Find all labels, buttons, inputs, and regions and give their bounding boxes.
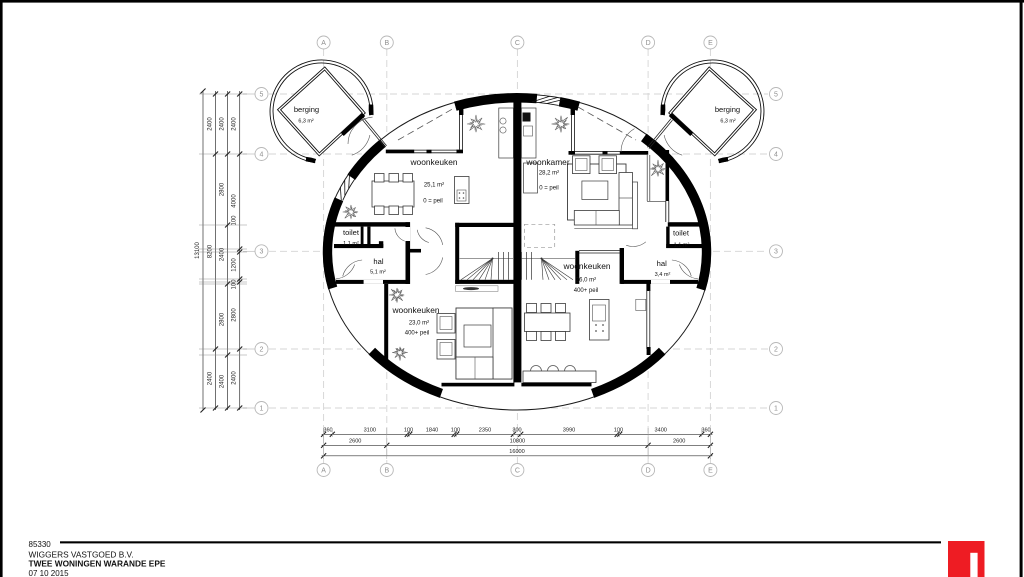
svg-text:3: 3 [260, 249, 264, 256]
svg-text:0 = peil: 0 = peil [423, 199, 443, 205]
svg-text:2400: 2400 [207, 117, 213, 131]
svg-text:D: D [646, 467, 651, 474]
svg-text:woonkeuken: woonkeuken [409, 157, 457, 167]
svg-text:2: 2 [774, 346, 778, 353]
svg-text:woonkeuken: woonkeuken [562, 261, 610, 271]
svg-text:07 10 2015: 07 10 2015 [29, 569, 70, 577]
svg-text:toilet: toilet [673, 229, 690, 238]
svg-text:6,3 m²: 6,3 m² [720, 119, 735, 125]
svg-text:2800: 2800 [219, 182, 225, 196]
svg-text:4: 4 [774, 151, 778, 158]
svg-text:3990: 3990 [563, 427, 575, 433]
svg-text:2600: 2600 [673, 438, 685, 444]
svg-text:2400: 2400 [219, 374, 225, 388]
svg-text:E: E [708, 40, 713, 47]
svg-text:2600: 2600 [349, 438, 361, 444]
svg-text:13100: 13100 [195, 241, 201, 258]
svg-text:2400: 2400 [207, 371, 213, 385]
svg-text:berging: berging [715, 105, 740, 114]
svg-text:hal: hal [657, 259, 667, 268]
svg-text:2400: 2400 [232, 371, 238, 385]
svg-text:2800: 2800 [232, 308, 238, 322]
svg-text:2: 2 [260, 346, 264, 353]
svg-text:5,1 m²: 5,1 m² [370, 270, 386, 276]
svg-text:100: 100 [404, 427, 413, 433]
svg-text:hal: hal [373, 257, 383, 266]
svg-text:28,2 m²: 28,2 m² [539, 171, 559, 177]
svg-text:10800: 10800 [510, 438, 526, 444]
svg-text:2400: 2400 [219, 117, 225, 131]
svg-text:0 = peil: 0 = peil [539, 186, 559, 192]
svg-text:5: 5 [774, 91, 778, 98]
svg-text:360: 360 [701, 427, 710, 433]
svg-text:4: 4 [260, 151, 264, 158]
svg-text:2800: 2800 [219, 312, 225, 326]
svg-text:6,3 m²: 6,3 m² [298, 119, 313, 125]
svg-text:5: 5 [260, 91, 264, 98]
svg-text:16000: 16000 [509, 449, 525, 455]
svg-text:2400: 2400 [219, 247, 225, 261]
svg-text:1: 1 [774, 405, 778, 412]
svg-text:100: 100 [614, 427, 623, 433]
svg-text:woonkeuken: woonkeuken [391, 305, 439, 315]
svg-text:A: A [321, 467, 326, 474]
svg-text:2350: 2350 [479, 427, 491, 433]
svg-text:400+ peil: 400+ peil [405, 331, 430, 337]
svg-text:3100: 3100 [364, 427, 376, 433]
svg-text:1,1 m²: 1,1 m² [674, 243, 690, 249]
svg-text:woonkamer: woonkamer [525, 157, 570, 167]
svg-text:TWEE WONINGEN WARANDE EPE: TWEE WONINGEN WARANDE EPE [29, 559, 166, 569]
svg-text:4000: 4000 [232, 194, 238, 208]
svg-text:1200: 1200 [232, 258, 238, 272]
svg-text:2400: 2400 [232, 117, 238, 131]
svg-text:100: 100 [232, 215, 238, 226]
svg-text:360: 360 [323, 427, 332, 433]
svg-text:3: 3 [774, 249, 778, 256]
svg-text:100: 100 [232, 279, 238, 290]
svg-text:1: 1 [260, 405, 264, 412]
svg-text:85330: 85330 [29, 540, 52, 549]
svg-text:300: 300 [512, 427, 521, 433]
svg-text:400+ peil: 400+ peil [574, 288, 599, 294]
svg-text:26,0 m²: 26,0 m² [576, 278, 596, 284]
svg-text:25,1 m²: 25,1 m² [424, 183, 444, 189]
svg-text:100: 100 [451, 427, 460, 433]
svg-text:E: E [708, 467, 713, 474]
svg-text:8200: 8200 [207, 244, 213, 258]
svg-text:berging: berging [294, 105, 319, 114]
svg-text:C: C [515, 467, 520, 474]
svg-text:B: B [384, 467, 389, 474]
svg-text:toilet: toilet [343, 228, 360, 237]
svg-text:1,1 m²: 1,1 m² [343, 241, 359, 247]
svg-text:23,0 m²: 23,0 m² [409, 321, 429, 327]
svg-text:1840: 1840 [426, 427, 438, 433]
svg-text:B: B [384, 40, 389, 47]
svg-text:D: D [646, 40, 651, 47]
svg-text:3400: 3400 [654, 427, 666, 433]
svg-text:3,4 m²: 3,4 m² [655, 272, 671, 278]
svg-text:A: A [321, 40, 326, 47]
svg-text:C: C [515, 40, 520, 47]
